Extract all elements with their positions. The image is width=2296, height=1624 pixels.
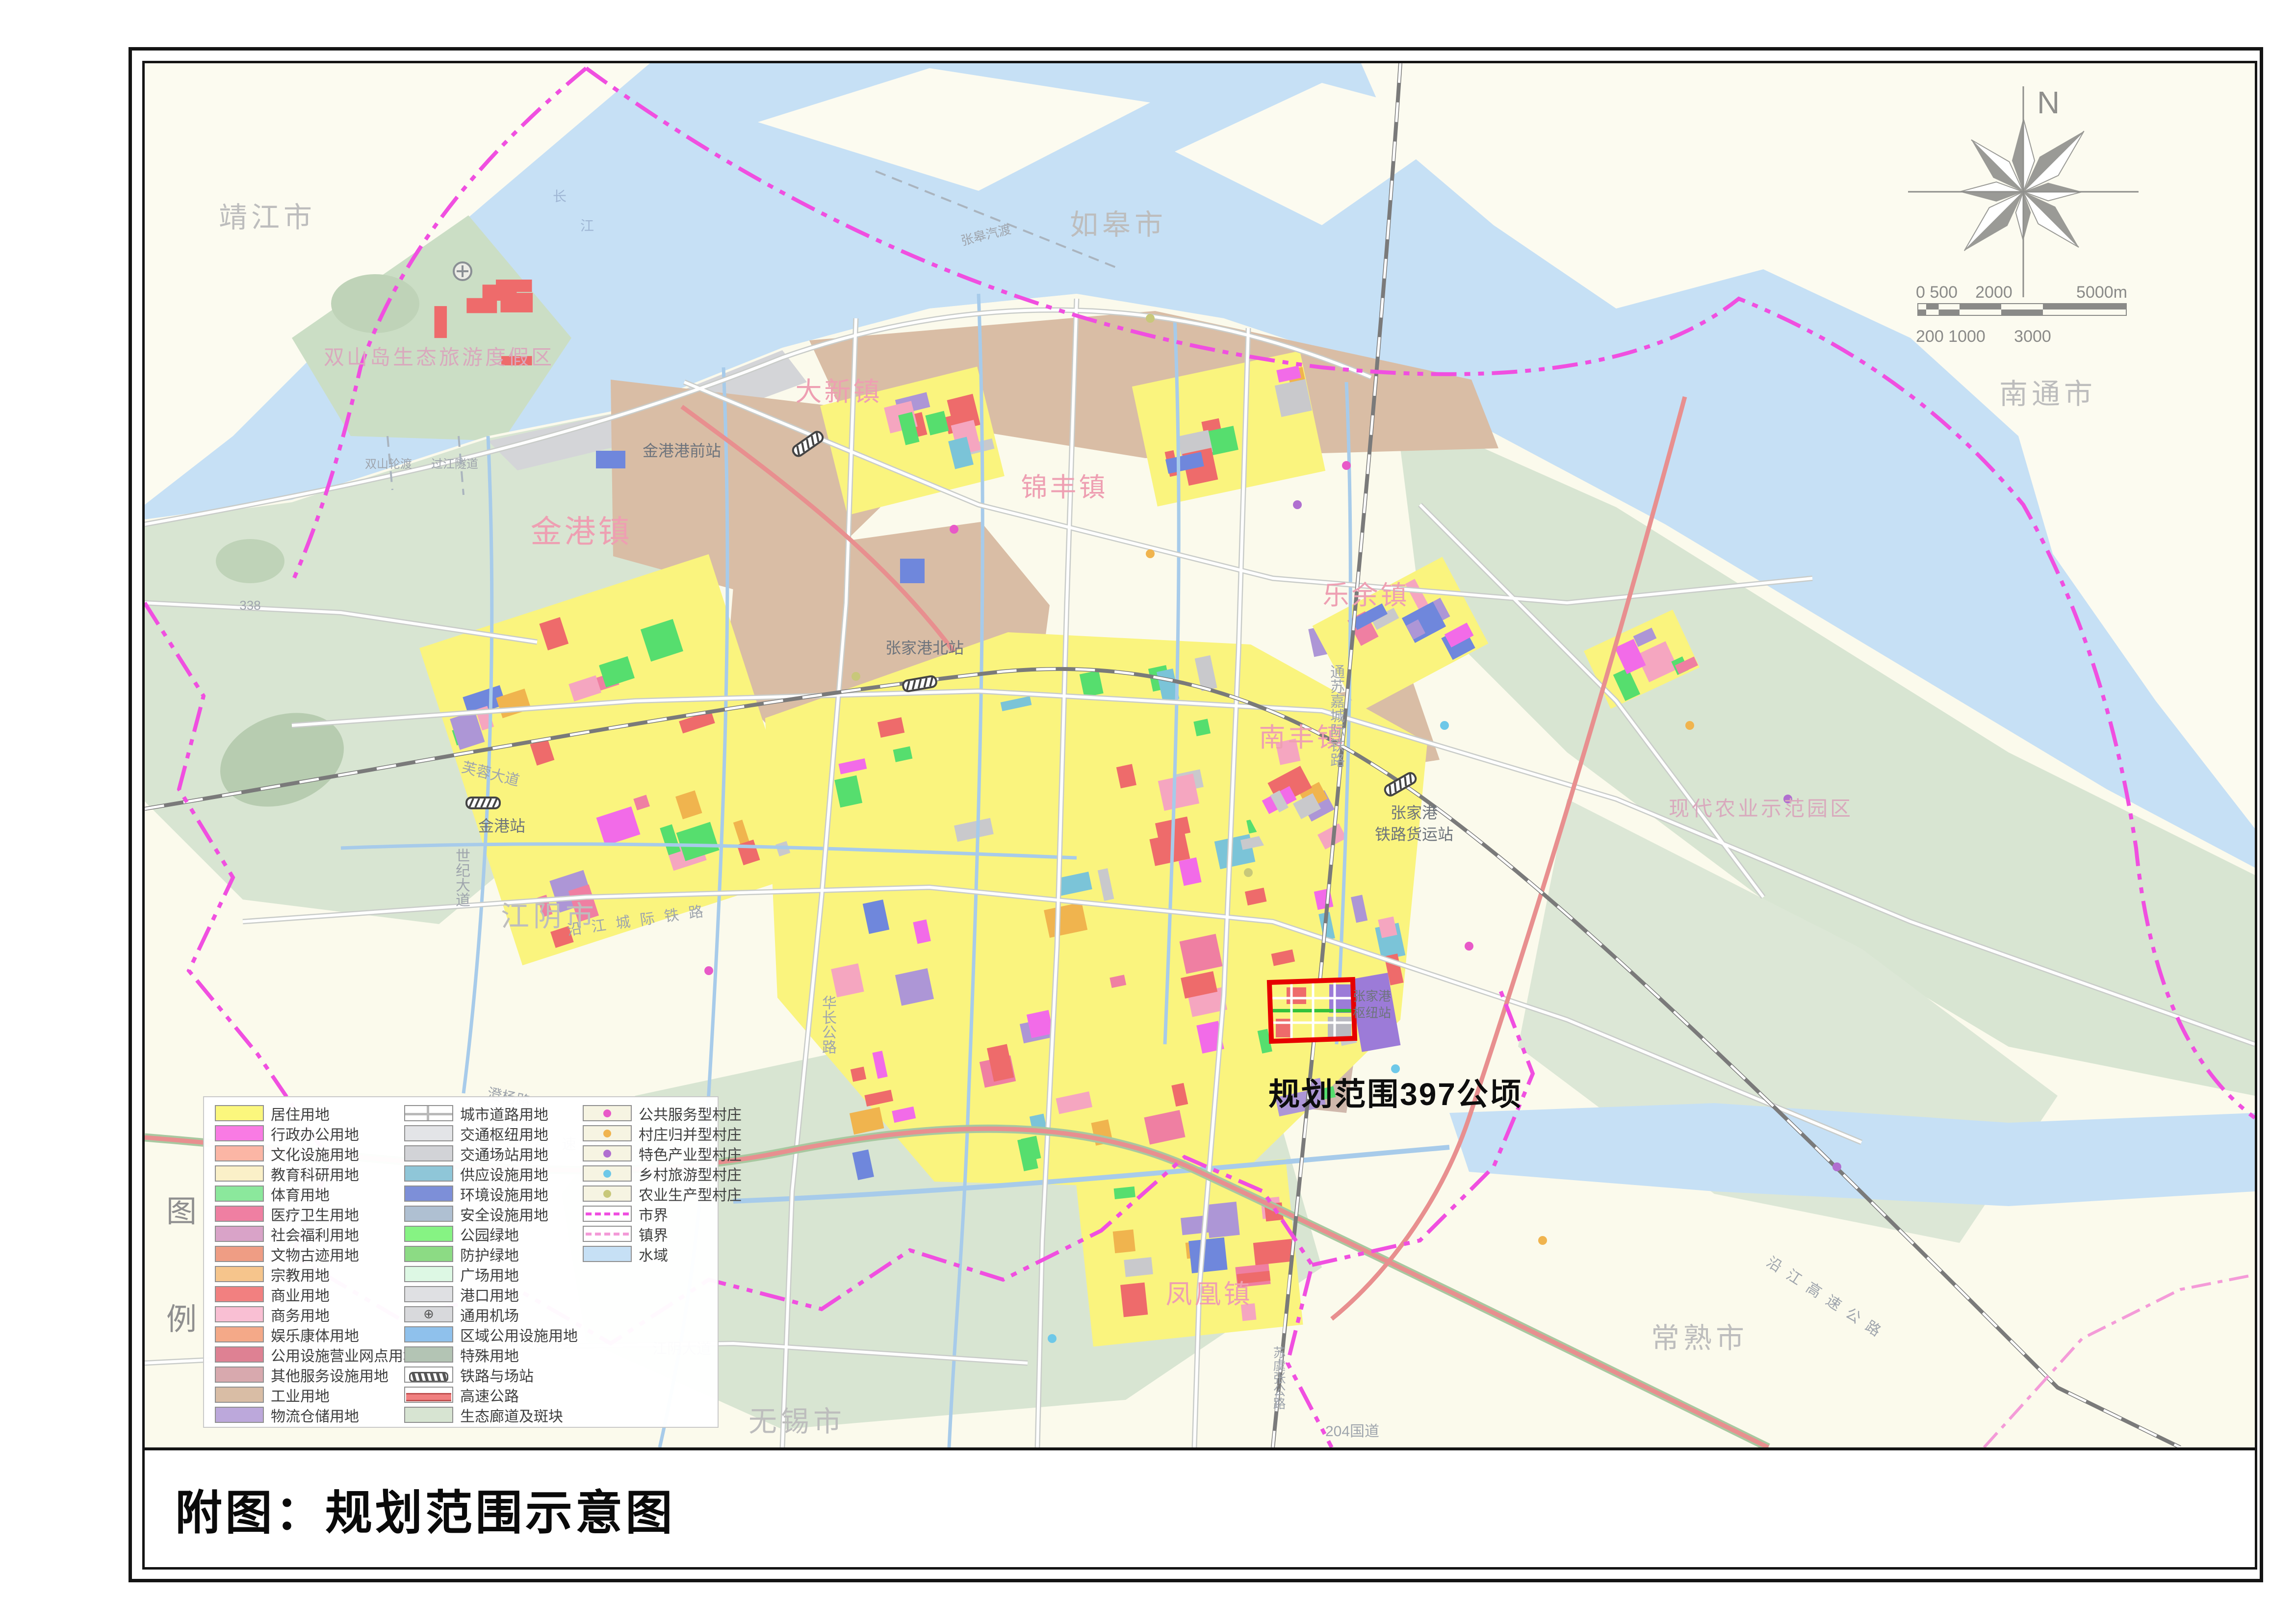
- legend-swatch-road: [404, 1105, 453, 1121]
- legend-item-label: 乡村旅游型村庄: [639, 1163, 742, 1185]
- legend-item-label: 医疗卫生用地: [271, 1203, 359, 1225]
- legend-item-label: 行政办公用地: [271, 1123, 359, 1144]
- landuse-parcel: [1188, 1237, 1228, 1273]
- legend-item-label: 交通枢纽用地: [460, 1123, 548, 1144]
- legend-item-label: 宗教用地: [271, 1263, 330, 1285]
- landuse-parcel: [1206, 1202, 1239, 1238]
- legend-swatch-fill: [404, 1226, 453, 1242]
- legend-swatch-dot: [583, 1165, 632, 1182]
- legend-item-label: 供应设施用地: [460, 1163, 548, 1185]
- legend-swatch-fill: [215, 1125, 264, 1141]
- title-band: 附图：规划范围示意图: [145, 1450, 2255, 1567]
- legend-item-label: 城市道路用地: [460, 1103, 548, 1124]
- village-dot: [1048, 1334, 1057, 1343]
- scale-bar-segment: [1939, 309, 1960, 315]
- legend-swatch-fill: [404, 1145, 453, 1161]
- legend-swatch-fill: [404, 1246, 453, 1262]
- legend-swatch-fill: [215, 1105, 264, 1121]
- legend-item-label: 特色产业型村庄: [639, 1143, 742, 1164]
- boundary-line-icon: [586, 1233, 629, 1236]
- legend-item: 交通场站用地: [404, 1143, 578, 1163]
- legend-item: 防护绿地: [404, 1244, 578, 1264]
- scale-bar-segment: [1918, 309, 1926, 315]
- scale-label: 2000: [1975, 283, 2012, 302]
- urban-cluster: [1076, 1159, 1303, 1346]
- legend-item: 文物古迹用地: [215, 1244, 418, 1264]
- legend-item: 高速公路: [404, 1385, 578, 1405]
- scale-bar-segment: [2043, 304, 2126, 309]
- legend-item: 商务用地: [215, 1304, 418, 1324]
- legend-swatch-fill: [215, 1266, 264, 1282]
- legend-item-label: 其他服务设施用地: [271, 1364, 388, 1386]
- legend-item: 市界: [583, 1204, 742, 1224]
- landuse-parcel: [1113, 1230, 1135, 1254]
- legend-item-label: 特殊用地: [460, 1344, 519, 1366]
- legend-swatch-fill: [215, 1145, 264, 1161]
- legend-item-label: 环境设施用地: [460, 1183, 548, 1205]
- legend-swatch-dot: [583, 1186, 632, 1202]
- legend-swatch-fill: [404, 1266, 453, 1282]
- legend-item: 商业用地: [215, 1284, 418, 1304]
- compass-north-label: N: [2037, 85, 2060, 120]
- legend-item: 铁路与场站: [404, 1365, 578, 1385]
- legend-item: 安全设施用地: [404, 1204, 578, 1224]
- planning-boundary-box: [1269, 980, 1355, 1041]
- village-dot: [704, 966, 713, 975]
- legend-item: ⊕通用机场: [404, 1304, 578, 1324]
- legend-swatch-fill: [215, 1246, 264, 1262]
- landuse-parcel: [1120, 1283, 1148, 1317]
- landuse-parcel: [1253, 1239, 1294, 1265]
- legend-swatch-fill: [404, 1125, 453, 1141]
- village-dot: [1783, 795, 1792, 803]
- legend-item-label: 交通场站用地: [460, 1143, 548, 1164]
- legend-swatch-fill: [215, 1306, 264, 1322]
- legend-item-label: 文物古迹用地: [271, 1243, 359, 1265]
- legend-item: 娱乐康体用地: [215, 1324, 418, 1344]
- legend-heading-char: 图: [166, 1186, 197, 1231]
- legend-item-label: 村庄归并型村庄: [639, 1123, 742, 1144]
- legend-panel: 居住用地行政办公用地文化设施用地教育科研用地体育用地医疗卫生用地社会福利用地文物…: [203, 1096, 719, 1428]
- legend-item-label: 物流仓储用地: [271, 1404, 359, 1426]
- scale-label: 0 500: [1916, 283, 1958, 302]
- legend-item: 特色产业型村庄: [583, 1143, 742, 1163]
- legend-item: 特殊用地: [404, 1344, 578, 1365]
- legend-item-label: 公共服务型村庄: [639, 1103, 742, 1124]
- legend-item-label: 体育用地: [271, 1183, 330, 1205]
- legend-swatch-fill: [215, 1206, 264, 1222]
- legend-item: 公共服务型村庄: [583, 1103, 742, 1123]
- legend-item-label: 居住用地: [271, 1103, 330, 1124]
- legend-swatch-fill: [215, 1165, 264, 1182]
- village-dot: [1538, 1236, 1547, 1245]
- legend-swatch-dot: [583, 1105, 632, 1121]
- legend-swatch-fill: [215, 1387, 264, 1403]
- legend-item: 工业用地: [215, 1385, 418, 1405]
- legend-column: 居住用地行政办公用地文化设施用地教育科研用地体育用地医疗卫生用地社会福利用地文物…: [215, 1103, 418, 1425]
- scale-bar-segment: [2001, 309, 2043, 315]
- hill: [216, 539, 284, 583]
- legend-item: 乡村旅游型村庄: [583, 1163, 742, 1184]
- legend-item-label: 生态廊道及斑块: [460, 1404, 563, 1426]
- legend-item: 港口用地: [404, 1284, 578, 1304]
- legend-item: 农业生产型村庄: [583, 1184, 742, 1204]
- legend-item: 体育用地: [215, 1184, 418, 1204]
- legend-swatch-fill: [215, 1407, 264, 1423]
- village-dot-icon: [603, 1190, 611, 1198]
- legend-item-label: 文化设施用地: [271, 1143, 359, 1164]
- legend-item-label: 工业用地: [271, 1384, 330, 1406]
- legend-swatch-fill: [215, 1346, 264, 1363]
- scale-bar-segment: [1960, 304, 2001, 309]
- legend-item: 环境设施用地: [404, 1184, 578, 1204]
- legend-swatch-fill: [215, 1366, 264, 1383]
- village-dot: [1440, 721, 1449, 730]
- legend-item: 供应设施用地: [404, 1163, 578, 1184]
- legend-item-label: 公园绿地: [460, 1223, 519, 1245]
- village-dot: [851, 672, 860, 681]
- village-dot-icon: [603, 1109, 611, 1117]
- village-dot-icon: [603, 1150, 611, 1158]
- legend-item-label: 广场用地: [460, 1263, 519, 1285]
- landuse-parcel: [501, 356, 532, 365]
- legend-item: 行政办公用地: [215, 1123, 418, 1143]
- legend-item-label: 通用机场: [460, 1304, 519, 1325]
- legend-swatch-fill: [404, 1286, 453, 1302]
- landuse-parcel: [1124, 1257, 1153, 1277]
- legend-heading: 图 例: [159, 1186, 204, 1339]
- legend-column: 公共服务型村庄村庄归并型村庄特色产业型村庄乡村旅游型村庄农业生产型村庄市界镇界水…: [583, 1103, 742, 1264]
- legend-item: 生态廊道及斑块: [404, 1405, 578, 1425]
- legend-swatch-fill: [404, 1407, 453, 1423]
- village-dot: [1685, 721, 1694, 730]
- legend-swatch-fill: [215, 1226, 264, 1242]
- legend-item: 医疗卫生用地: [215, 1204, 418, 1224]
- railway-station-icon: [466, 798, 500, 808]
- village-dot: [1391, 1064, 1400, 1073]
- legend-item-label: 水域: [639, 1243, 668, 1265]
- scale-label: 5000m: [2076, 283, 2127, 302]
- legend-swatch-fill: [404, 1206, 453, 1222]
- legend-item: 镇界: [583, 1224, 742, 1244]
- planning-map-page: N 0 500 2000 5000m 200 1000 3000 靖江市如皋市南…: [0, 0, 2296, 1624]
- island-hill: [331, 274, 419, 333]
- village-dot: [1244, 868, 1253, 877]
- legend-item-label: 教育科研用地: [271, 1163, 359, 1185]
- legend-item: 村庄归并型村庄: [583, 1123, 742, 1143]
- legend-item: 文化设施用地: [215, 1143, 418, 1163]
- legend-swatch-fill: [404, 1165, 453, 1182]
- legend-item: 城市道路用地: [404, 1103, 578, 1123]
- airport-icon: [454, 262, 471, 280]
- legend-swatch-fill: [404, 1326, 453, 1342]
- legend-swatch-fill: [215, 1186, 264, 1202]
- legend-swatch-dot: [583, 1125, 632, 1141]
- legend-item-label: 娱乐康体用地: [271, 1324, 359, 1345]
- legend-heading-char: 例: [166, 1294, 197, 1339]
- legend-swatch-fill: [583, 1246, 632, 1262]
- legend-item: 其他服务设施用地: [215, 1365, 418, 1385]
- legend-item-label: 市界: [639, 1203, 668, 1225]
- legend-item-label: 农业生产型村庄: [639, 1183, 742, 1205]
- landuse-parcel: [1241, 1303, 1257, 1321]
- legend-item-label: 公用设施营业网点用地: [271, 1344, 418, 1366]
- legend-item: 水域: [583, 1244, 742, 1264]
- utility-block: [900, 559, 925, 583]
- village-dot: [1146, 314, 1155, 323]
- landuse-parcel: [466, 298, 497, 313]
- legend-item: 居住用地: [215, 1103, 418, 1123]
- landuse-parcel: [500, 293, 533, 312]
- village-dot-icon: [603, 1130, 611, 1137]
- legend-item-label: 安全设施用地: [460, 1203, 548, 1225]
- legend-item-label: 港口用地: [460, 1284, 519, 1305]
- legend-item-label: 高速公路: [460, 1384, 519, 1406]
- village-dot-icon: [603, 1170, 611, 1178]
- scale-label: 200 1000: [1916, 327, 1986, 346]
- legend-swatch-fill: [404, 1186, 453, 1202]
- legend-swatch-fill: [215, 1326, 264, 1342]
- legend-swatch-rail: [404, 1366, 453, 1383]
- content-frame: N 0 500 2000 5000m 200 1000 3000 靖江市如皋市南…: [142, 61, 2257, 1570]
- legend-swatch-fill: [215, 1286, 264, 1302]
- landuse-parcel: [831, 963, 864, 997]
- legend-item-label: 铁路与场站: [460, 1364, 534, 1386]
- legend-item-label: 防护绿地: [460, 1243, 519, 1265]
- village-dot: [1293, 500, 1302, 509]
- legend-item-label: 商业用地: [271, 1284, 330, 1305]
- legend-item: 公园绿地: [404, 1224, 578, 1244]
- map-area: N 0 500 2000 5000m 200 1000 3000 靖江市如皋市南…: [145, 63, 2255, 1450]
- scale-label: 3000: [2014, 327, 2051, 346]
- landuse-parcel: [435, 306, 447, 338]
- landuse-parcel: [1114, 1186, 1135, 1199]
- legend-item-label: 区域公用设施用地: [460, 1324, 578, 1345]
- legend-item: 区域公用设施用地: [404, 1324, 578, 1344]
- legend-item: 交通枢纽用地: [404, 1123, 578, 1143]
- village-dot: [1465, 942, 1473, 951]
- legend-item: 教育科研用地: [215, 1163, 418, 1184]
- legend-column: 城市道路用地交通枢纽用地交通场站用地供应设施用地环境设施用地安全设施用地公园绿地…: [404, 1103, 578, 1425]
- utility-block: [596, 451, 625, 468]
- page-title: 附图：规划范围示意图: [175, 1475, 675, 1543]
- village-dot: [1832, 1162, 1841, 1171]
- legend-item-label: 商务用地: [271, 1304, 330, 1325]
- landuse-parcel: [1275, 379, 1312, 417]
- landuse-parcel: [1193, 719, 1211, 736]
- legend-swatch-boundary: [583, 1206, 632, 1222]
- legend-item: 物流仓储用地: [215, 1405, 418, 1425]
- legend-item-label: 社会福利用地: [271, 1223, 359, 1245]
- boundary-line-icon: [586, 1212, 629, 1215]
- legend-item: 公用设施营业网点用地: [215, 1344, 418, 1365]
- scale-bar-segment: [1926, 304, 1939, 309]
- village-dot: [950, 525, 958, 534]
- legend-item: 宗教用地: [215, 1264, 418, 1284]
- legend-swatch-airport: ⊕: [404, 1306, 453, 1322]
- legend-swatch-boundary: [583, 1226, 632, 1242]
- legend-item: 广场用地: [404, 1264, 578, 1284]
- village-dot: [1342, 461, 1351, 470]
- legend-item: 社会福利用地: [215, 1224, 418, 1244]
- legend-swatch-hwy: [404, 1387, 453, 1403]
- airport-icon: ⊕: [423, 1306, 434, 1321]
- village-dot: [1146, 549, 1155, 558]
- legend-swatch-fill: [404, 1346, 453, 1363]
- legend-swatch-dot: [583, 1145, 632, 1161]
- legend-item-label: 镇界: [639, 1223, 668, 1245]
